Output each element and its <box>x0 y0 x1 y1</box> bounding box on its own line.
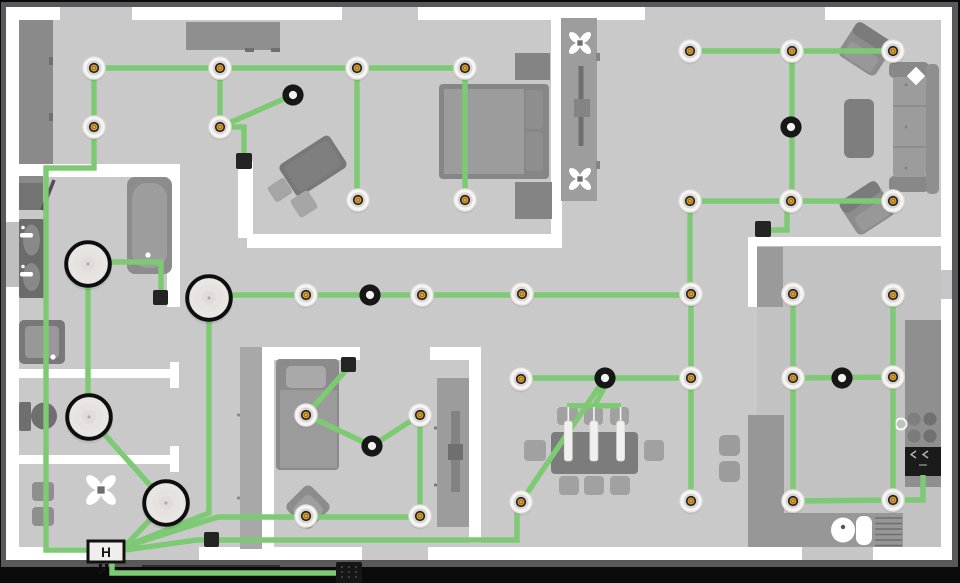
svg-text:H: H <box>101 545 111 560</box>
